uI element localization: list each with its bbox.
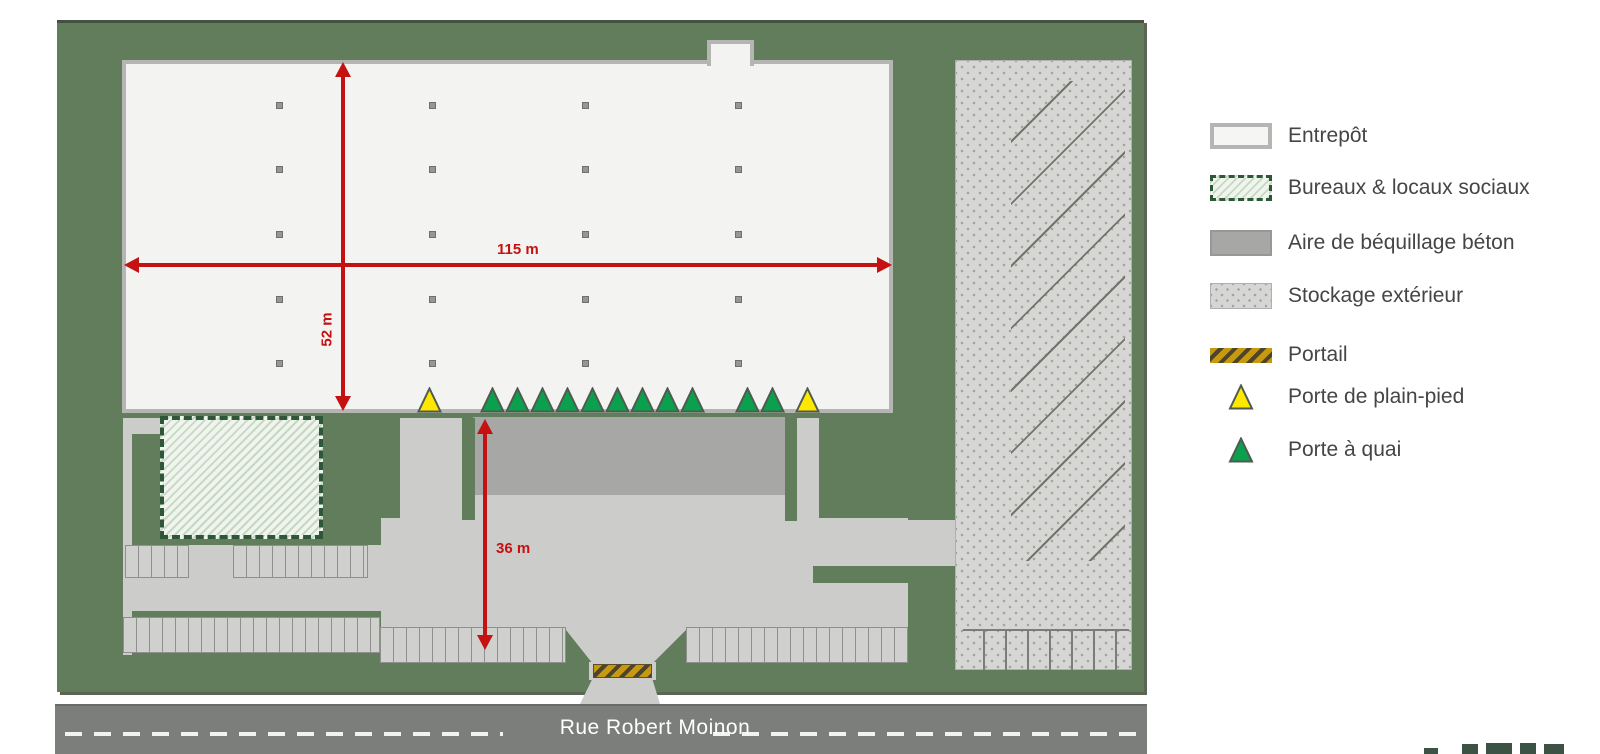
legend-item-stockage: Stockage extérieur: [1210, 281, 1463, 311]
legend-label-gate: Portail: [1288, 343, 1348, 367]
legend-label-ground-door: Porte de plain-pied: [1288, 385, 1464, 409]
office-block: [160, 416, 323, 539]
dim-line-36m: [483, 424, 487, 640]
legend-swatch-ground-door-icon: [1210, 384, 1272, 410]
legend-label-concrete-apron: Aire de béquillage béton: [1288, 231, 1515, 255]
dock-door-icon: [655, 387, 680, 413]
yard-left-notch: [123, 418, 161, 434]
green-island-left: [462, 418, 475, 520]
parking-row-upper-b: [233, 545, 368, 578]
column-dot: [582, 231, 589, 238]
green-tab-right: [813, 566, 957, 583]
column-dot: [429, 231, 436, 238]
dock-door-icon: [735, 387, 760, 413]
column-dot: [735, 231, 742, 238]
legend-label-warehouse: Entrepôt: [1288, 124, 1367, 148]
gate-portail: [593, 664, 652, 678]
dim-arrow-52m-bottom: [335, 396, 351, 411]
ground-level-door-icon: [795, 387, 820, 413]
dim-label-36m: 36 m: [496, 540, 530, 557]
dock-door-icon: [580, 387, 605, 413]
legend-item-plain-pied: Porte de plain-pied: [1210, 382, 1464, 412]
legend-label-dock-door: Porte à quai: [1288, 438, 1401, 462]
legend-label-exterior-storage: Stockage extérieur: [1288, 284, 1463, 308]
ground-level-door-icon: [417, 387, 442, 413]
parking-row-lower-right: [686, 627, 908, 663]
column-dot: [582, 102, 589, 109]
dim-arrow-115m-right: [877, 257, 892, 273]
dim-arrow-115m-left: [124, 257, 139, 273]
entrance-driveway: [580, 678, 660, 704]
column-dot: [276, 360, 283, 367]
legend-item-entrepot: Entrepôt: [1210, 121, 1367, 151]
warehouse-building: [122, 60, 893, 413]
dock-door-icon: [505, 387, 530, 413]
column-dot: [276, 231, 283, 238]
dim-line-115m: [132, 263, 884, 267]
legend-swatch-gate: [1210, 348, 1272, 363]
dim-arrow-52m-top: [335, 62, 351, 77]
driveway-left: [400, 418, 462, 523]
dim-label-115m: 115 m: [497, 241, 539, 258]
legend-swatch-concrete-apron: [1210, 230, 1272, 256]
dock-door-icon: [530, 387, 555, 413]
street-name-label: Rue Robert Moinon: [505, 716, 805, 740]
dock-door-icon: [760, 387, 785, 413]
street: Rue Robert Moinon: [55, 704, 1147, 754]
green-island-mid: [785, 418, 797, 521]
dim-arrow-36m-top: [477, 419, 493, 434]
storage-parking-row: [963, 629, 1129, 670]
driveway-right: [797, 418, 819, 523]
storage-diagonal-lines: [1011, 81, 1125, 561]
dock-door-icon: [630, 387, 655, 413]
legend-label-offices: Bureaux & locaux sociaux: [1288, 176, 1530, 200]
dock-door-icon: [680, 387, 705, 413]
dim-arrow-36m-bottom: [477, 635, 493, 650]
dock-door-icon: [480, 387, 505, 413]
dim-line-52m: [341, 68, 345, 405]
legend-item-aire: Aire de béquillage béton: [1210, 228, 1515, 258]
dock-door-icon: [605, 387, 630, 413]
legend-swatch-offices: [1210, 175, 1272, 201]
column-dot: [735, 296, 742, 303]
green-island-right: [819, 418, 908, 515]
parking-row-lower-left: [123, 617, 380, 653]
column-dot: [582, 296, 589, 303]
legend-item-portail: Portail: [1210, 340, 1348, 370]
column-dot: [429, 102, 436, 109]
column-dot: [429, 296, 436, 303]
column-dot: [735, 166, 742, 173]
column-dot: [735, 102, 742, 109]
column-dot: [276, 296, 283, 303]
dim-label-52m: 52 m: [319, 306, 336, 354]
column-dot: [735, 360, 742, 367]
yard-under-dock: [473, 495, 785, 520]
column-dot: [582, 166, 589, 173]
street-centerline-left: [65, 732, 503, 736]
legend-swatch-exterior-storage: [1210, 283, 1272, 309]
column-dot: [429, 166, 436, 173]
column-dot: [582, 360, 589, 367]
column-dot: [276, 102, 283, 109]
dock-door-icon: [555, 387, 580, 413]
legend-swatch-warehouse: [1210, 123, 1272, 149]
concrete-dock-apron: [473, 417, 785, 495]
legend-item-bureaux: Bureaux & locaux sociaux: [1210, 173, 1530, 203]
parking-row-upper-a: [125, 545, 189, 578]
column-dot: [276, 166, 283, 173]
parking-row-lower-mid: [380, 627, 566, 663]
building-roof-notch: [707, 40, 754, 66]
legend-item-quai: Porte à quai: [1210, 435, 1401, 465]
column-dot: [429, 360, 436, 367]
legend-swatch-dock-door-icon: [1210, 437, 1272, 463]
site-plan-screenshot: Rue Robert Moinon: [0, 0, 1600, 754]
exterior-storage-area: [955, 60, 1132, 670]
yard-corridor-to-storage: [908, 520, 957, 568]
